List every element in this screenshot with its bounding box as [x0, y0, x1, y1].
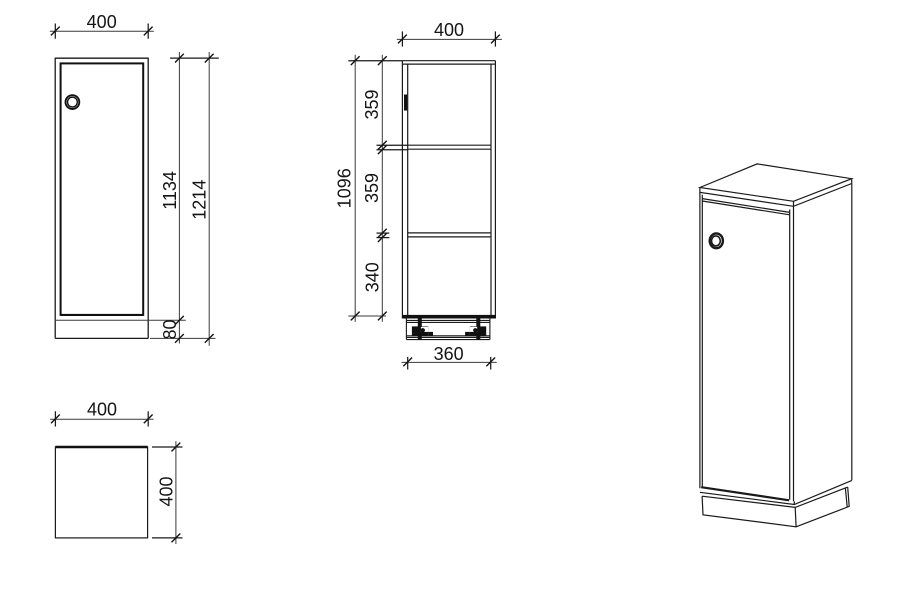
svg-text:1214: 1214: [190, 180, 210, 220]
svg-text:400: 400: [156, 476, 176, 506]
svg-text:359: 359: [362, 89, 382, 119]
svg-text:400: 400: [87, 12, 117, 32]
svg-text:1134: 1134: [160, 171, 180, 210]
svg-text:1096: 1096: [335, 168, 355, 208]
svg-text:360: 360: [434, 344, 464, 364]
svg-text:80: 80: [160, 319, 180, 339]
svg-text:340: 340: [362, 262, 382, 292]
svg-text:400: 400: [87, 400, 117, 420]
svg-text:359: 359: [362, 173, 382, 203]
svg-text:400: 400: [434, 20, 464, 40]
